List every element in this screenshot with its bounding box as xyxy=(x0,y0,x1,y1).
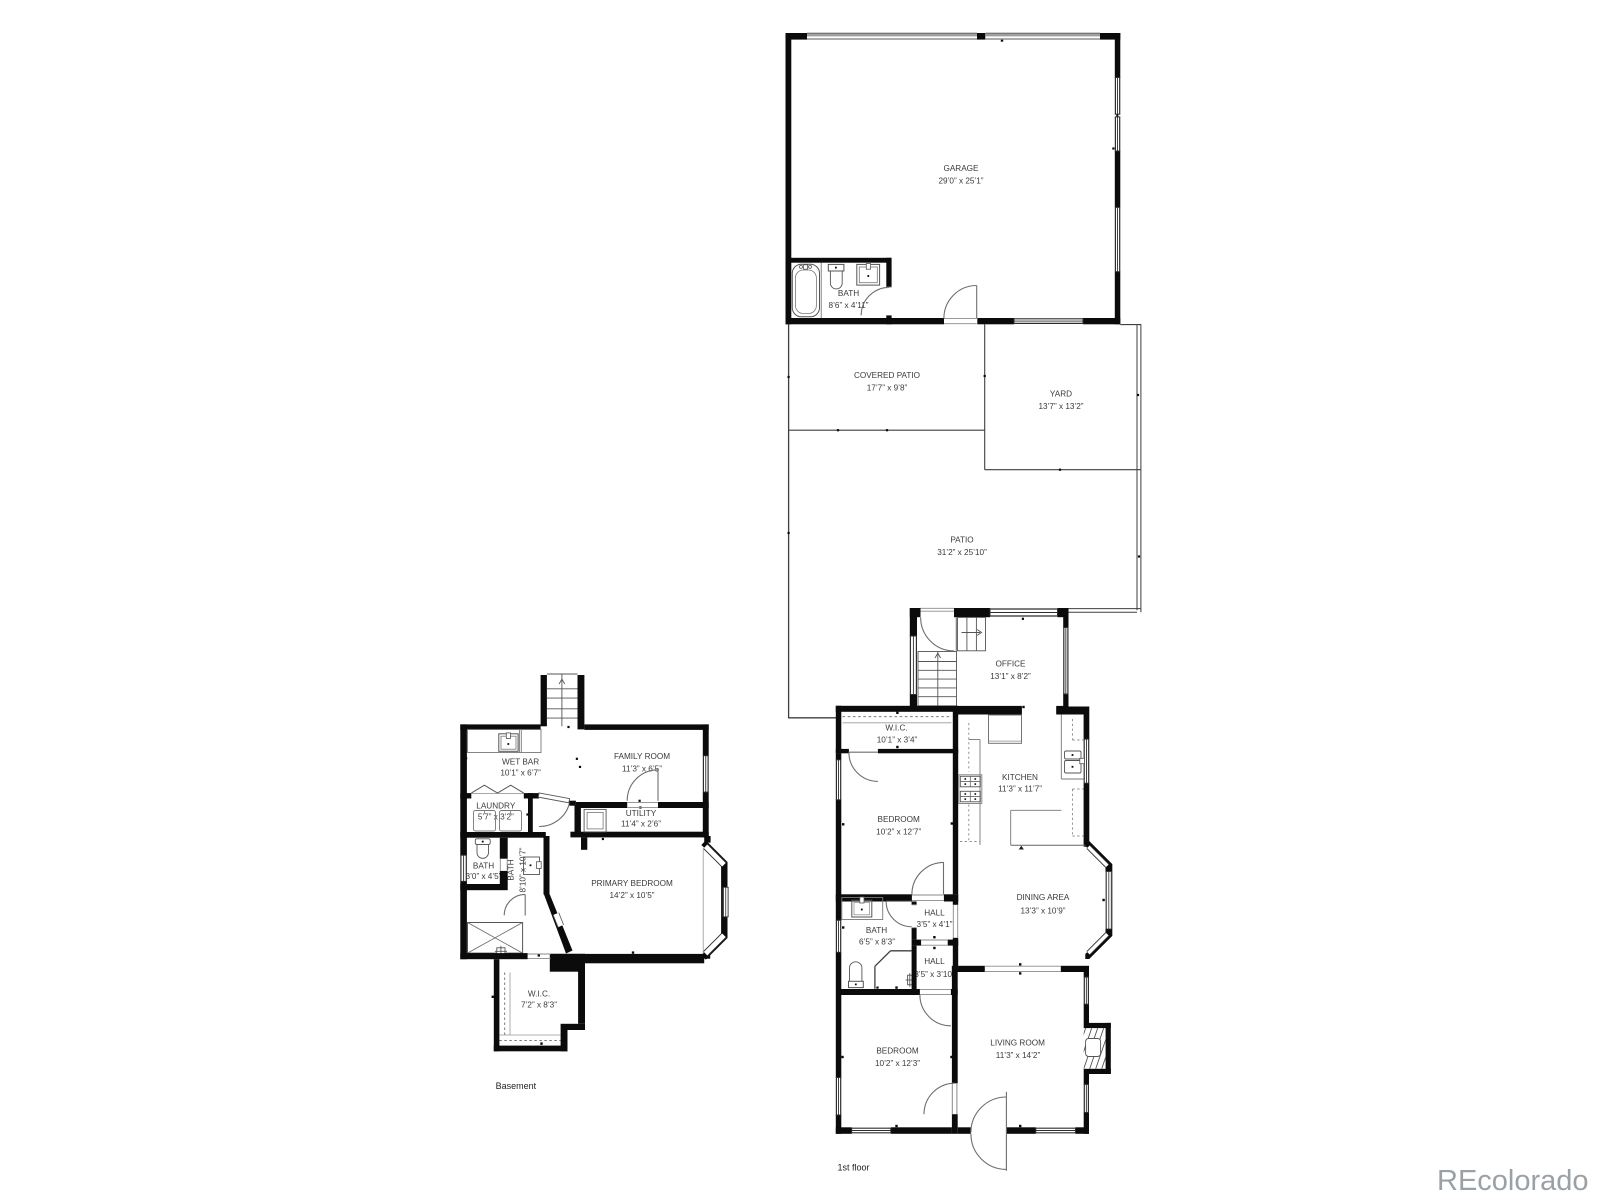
svg-text:17’7” x 9’8”: 17’7” x 9’8” xyxy=(867,384,908,393)
svg-text:YARD: YARD xyxy=(1050,390,1072,399)
svg-text:1st floor: 1st floor xyxy=(838,1163,870,1173)
svg-text:10’2” x 12’3”: 10’2” x 12’3” xyxy=(875,1059,920,1068)
svg-text:29’0” x 25’1”: 29’0” x 25’1” xyxy=(938,177,983,186)
svg-text:BEDROOM: BEDROOM xyxy=(878,815,920,824)
svg-text:11’3” x 14’2”: 11’3” x 14’2” xyxy=(996,1051,1041,1060)
svg-text:GARAGE: GARAGE xyxy=(943,164,979,173)
svg-text:Basement: Basement xyxy=(496,1081,537,1091)
svg-text:3’0” x 4’5”: 3’0” x 4’5” xyxy=(466,872,502,881)
svg-text:OFFICE: OFFICE xyxy=(995,660,1026,669)
svg-text:3’5” x 3’10”: 3’5” x 3’10” xyxy=(914,970,955,979)
svg-text:REcolorado: REcolorado xyxy=(1437,1165,1589,1197)
svg-text:UTILITY: UTILITY xyxy=(626,809,657,818)
svg-text:BATH: BATH xyxy=(866,926,887,935)
svg-text:BATH: BATH xyxy=(473,862,494,871)
svg-text:KITCHEN: KITCHEN xyxy=(1002,773,1038,782)
svg-text:PATIO: PATIO xyxy=(950,536,973,545)
svg-text:14’2” x 10’5”: 14’2” x 10’5” xyxy=(609,891,654,900)
svg-text:6’5” x 8’3”: 6’5” x 8’3” xyxy=(859,938,895,947)
svg-text:11’3” x 6’5”: 11’3” x 6’5” xyxy=(622,765,662,774)
svg-text:11’4” x 2’6”: 11’4” x 2’6” xyxy=(621,820,661,829)
svg-text:11’3” x 11’7”: 11’3” x 11’7” xyxy=(998,785,1042,794)
svg-text:10’2” x 12’7”: 10’2” x 12’7” xyxy=(876,828,921,837)
svg-text:13’7” x 13’2”: 13’7” x 13’2” xyxy=(1038,402,1083,411)
svg-text:HALL: HALL xyxy=(924,957,945,966)
svg-text:DINING AREA: DINING AREA xyxy=(1017,893,1070,902)
svg-text:10’1” x 3’4”: 10’1” x 3’4” xyxy=(877,736,918,745)
svg-text:13’3” x 10’9”: 13’3” x 10’9” xyxy=(1020,907,1065,916)
svg-text:WET BAR: WET BAR xyxy=(502,758,539,767)
svg-text:FAMILY ROOM: FAMILY ROOM xyxy=(614,752,670,761)
svg-text:BATH: BATH xyxy=(838,289,859,298)
svg-text:HALL: HALL xyxy=(924,909,945,918)
svg-text:COVERED PATIO: COVERED PATIO xyxy=(854,371,920,380)
svg-text:W.I.C.: W.I.C. xyxy=(528,990,550,999)
svg-text:10’1” x 6’7”: 10’1” x 6’7” xyxy=(500,769,541,778)
svg-text:31’2” x 25’10”: 31’2” x 25’10” xyxy=(937,548,987,557)
svg-text:7’2” x 8’3”: 7’2” x 8’3” xyxy=(521,1001,557,1010)
svg-text:8’10” x 10’7”: 8’10” x 10’7” xyxy=(519,847,528,892)
svg-text:LIVING ROOM: LIVING ROOM xyxy=(990,1039,1045,1048)
svg-text:LAUNDRY: LAUNDRY xyxy=(476,802,516,811)
svg-text:PRIMARY BEDROOM: PRIMARY BEDROOM xyxy=(591,879,673,888)
svg-text:BEDROOM: BEDROOM xyxy=(876,1047,918,1056)
svg-text:13’1” x 8’2”: 13’1” x 8’2” xyxy=(990,672,1031,681)
svg-text:3’5” x 4’1”: 3’5” x 4’1” xyxy=(917,920,953,929)
svg-text:W.I.C.: W.I.C. xyxy=(885,724,907,733)
svg-text:BATH: BATH xyxy=(507,859,516,880)
